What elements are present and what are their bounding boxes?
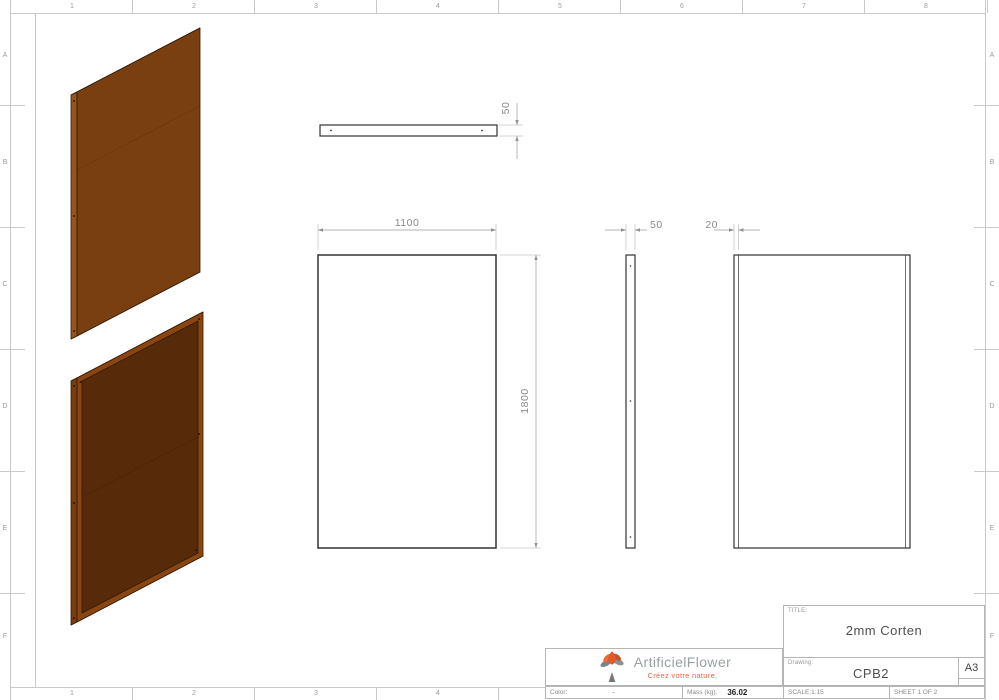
grid-col-label: 3	[254, 687, 377, 700]
front-view: 1100 1800	[318, 217, 541, 548]
grid-tick	[0, 593, 25, 594]
hole-mark	[630, 400, 632, 402]
grid-tick	[974, 227, 999, 228]
color-cell: Color: -	[545, 686, 682, 699]
dim-height: 1800	[500, 255, 541, 548]
mass-cell: Mass (kg): 36.02	[682, 686, 783, 699]
top-view: 50	[320, 102, 523, 159]
grid-col-label	[498, 687, 546, 700]
drawing-number-label: Drawing:	[788, 660, 813, 666]
dim-label-thickness: 50	[500, 102, 512, 115]
back-view: 20	[705, 219, 910, 548]
hole-mark	[330, 130, 332, 132]
drawing-canvas: 50 1100 1800	[0, 0, 999, 700]
grid-col-label: 1	[10, 0, 133, 13]
grid-col-label: 5	[498, 0, 621, 13]
grid-tick	[0, 471, 25, 472]
scale-text: SCALE:1:15	[788, 689, 824, 696]
logo-tagline: Créez votre nature.	[634, 671, 731, 680]
logo-name: ArtificielFlower	[634, 654, 731, 670]
sheet-cell: SHEET 1 OF 2	[889, 686, 985, 699]
dim-label-depth: 50	[650, 219, 663, 231]
grid-tick	[0, 227, 25, 228]
grid-row-label: B	[985, 159, 999, 166]
dim-width: 1100	[318, 217, 496, 250]
grid-row-label: C	[985, 281, 999, 288]
color-label: Color:	[550, 689, 567, 696]
grid-tick	[974, 593, 999, 594]
border-line	[35, 13, 36, 687]
sheet-text: SHEET 1 OF 2	[894, 689, 937, 696]
grid-row-label: F	[0, 633, 10, 640]
title-block: TITLE: 2mm Corten Drawing: CPB2 A3	[783, 605, 985, 686]
drawing-sheet: 50 1100 1800	[0, 0, 999, 700]
grid-tick	[974, 105, 999, 106]
grid-tick	[0, 349, 25, 350]
grid-row-label: A	[0, 52, 10, 59]
grid-row-label: E	[985, 525, 999, 532]
hole-mark	[630, 536, 632, 538]
side-view: 50	[605, 219, 663, 548]
grid-col-label: 3	[254, 0, 377, 13]
grid-col-label: 7	[742, 0, 865, 13]
color-value: -	[612, 689, 614, 696]
grid-row-label: B	[0, 159, 10, 166]
dim-depth: 50	[605, 219, 663, 250]
grid-col-label: 2	[132, 687, 255, 700]
grid-row-label: C	[0, 281, 10, 288]
drawing-title: 2mm Corten	[784, 606, 984, 638]
grid-col-label: 1	[10, 687, 133, 700]
mass-value: 36.02	[727, 688, 747, 697]
logo-box: ArtificielFlower Créez votre nature.	[545, 648, 783, 686]
hole-mark	[481, 130, 483, 132]
dim-label-height: 1800	[519, 388, 531, 413]
panel-side-face	[71, 378, 77, 625]
grid-row-label: F	[985, 633, 999, 640]
grid-tick	[974, 471, 999, 472]
dim-label-flange: 20	[705, 219, 718, 231]
grid-col-label: 2	[132, 0, 255, 13]
grid-row-label: E	[0, 525, 10, 532]
scale-cell: SCALE:1:15	[783, 686, 889, 699]
paper-size: A3	[958, 658, 984, 679]
grid-tick	[0, 105, 25, 106]
iso-view-front-panel	[71, 28, 200, 339]
artificielflower-logo-icon	[597, 650, 627, 684]
grid-row-label: D	[0, 403, 10, 410]
grid-col-label: 8	[864, 0, 988, 13]
grid-col-label: 6	[620, 0, 743, 13]
border-line	[10, 13, 985, 14]
iso-view-back-panel	[71, 312, 203, 625]
title-label: TITLE:	[788, 608, 807, 614]
mass-label: Mass (kg):	[687, 689, 717, 696]
panel-main-face	[77, 28, 200, 336]
dim-flange: 20	[705, 219, 760, 250]
grid-row-label: D	[985, 403, 999, 410]
grid-tick	[974, 349, 999, 350]
grid-row-label: A	[985, 52, 999, 59]
hole-mark	[630, 265, 632, 267]
info-row: Color: - Mass (kg): 36.02 SCALE:1:15 SHE…	[545, 686, 985, 699]
grid-col-label: 4	[376, 0, 499, 13]
dim-thickness: 50	[499, 102, 523, 159]
grid-col-label: 4	[376, 687, 499, 700]
dim-label-width: 1100	[395, 217, 420, 229]
